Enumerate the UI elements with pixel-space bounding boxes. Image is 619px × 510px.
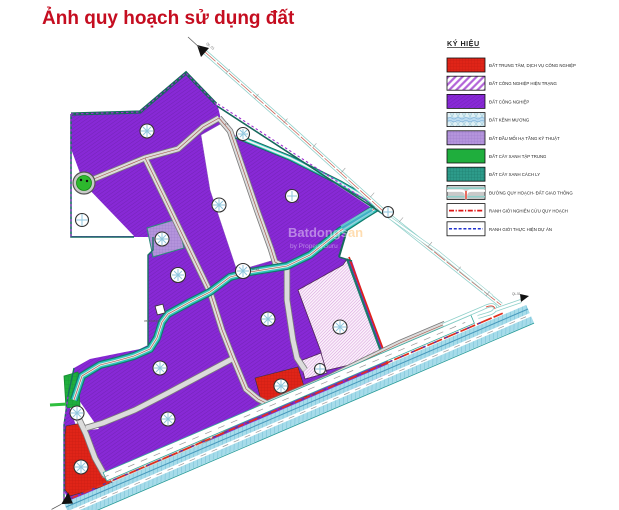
svg-text:QL.51: QL.51 bbox=[512, 292, 521, 296]
svg-text:RANH GIỚI NGHIÊN CỨU QUY HOẠCH: RANH GIỚI NGHIÊN CỨU QUY HOẠCH bbox=[489, 209, 568, 214]
svg-text:ĐẤT ĐẦU MỐI HẠ TẦNG KỸ THUẬT: ĐẤT ĐẦU MỐI HẠ TẦNG KỸ THUẬT bbox=[489, 136, 560, 141]
svg-text:ĐẤT CÂY XANH TẬP TRUNG: ĐẤT CÂY XANH TẬP TRUNG bbox=[489, 154, 547, 159]
svg-text:B=24: B=24 bbox=[252, 267, 259, 271]
svg-text:12: 12 bbox=[296, 200, 300, 204]
svg-text:ĐƯỜNG QUY HOẠCH- ĐẤT GIAO THÔN: ĐƯỜNG QUY HOẠCH- ĐẤT GIAO THÔNG bbox=[489, 190, 573, 195]
svg-text:05HM08413: 05HM08413 bbox=[144, 319, 161, 323]
svg-text:KÝ HIỆU: KÝ HIỆU bbox=[447, 39, 480, 48]
svg-text:ĐẤT CÔNG NGHIỆP HIỆN TRẠNG: ĐẤT CÔNG NGHIỆP HIỆN TRẠNG bbox=[489, 81, 557, 86]
svg-text:ĐẤT TRUNG TÂM, DỊCH VỤ CÔNG NG: ĐẤT TRUNG TÂM, DỊCH VỤ CÔNG NGHIỆP bbox=[489, 63, 576, 68]
svg-text:ĐẤT CÂY XANH CÁCH LY: ĐẤT CÂY XANH CÁCH LY bbox=[489, 172, 540, 177]
svg-text:17: 17 bbox=[225, 122, 229, 126]
svg-text:Ảnh quy hoạch sử dụng đất: Ảnh quy hoạch sử dụng đất bbox=[42, 7, 295, 29]
svg-text:ĐẤT KÊNH MƯƠNG: ĐẤT KÊNH MƯƠNG bbox=[489, 118, 530, 123]
svg-text:by PropertyGuru: by PropertyGuru bbox=[290, 243, 338, 250]
svg-text:Batdongsan: Batdongsan bbox=[288, 225, 363, 240]
svg-text:ĐẤT CÔNG NGHIỆP: ĐẤT CÔNG NGHIỆP bbox=[489, 99, 529, 104]
svg-text:RANH GIỚI THỰC HIỆN DỰ ÁN: RANH GIỚI THỰC HIỆN DỰ ÁN bbox=[489, 227, 552, 232]
